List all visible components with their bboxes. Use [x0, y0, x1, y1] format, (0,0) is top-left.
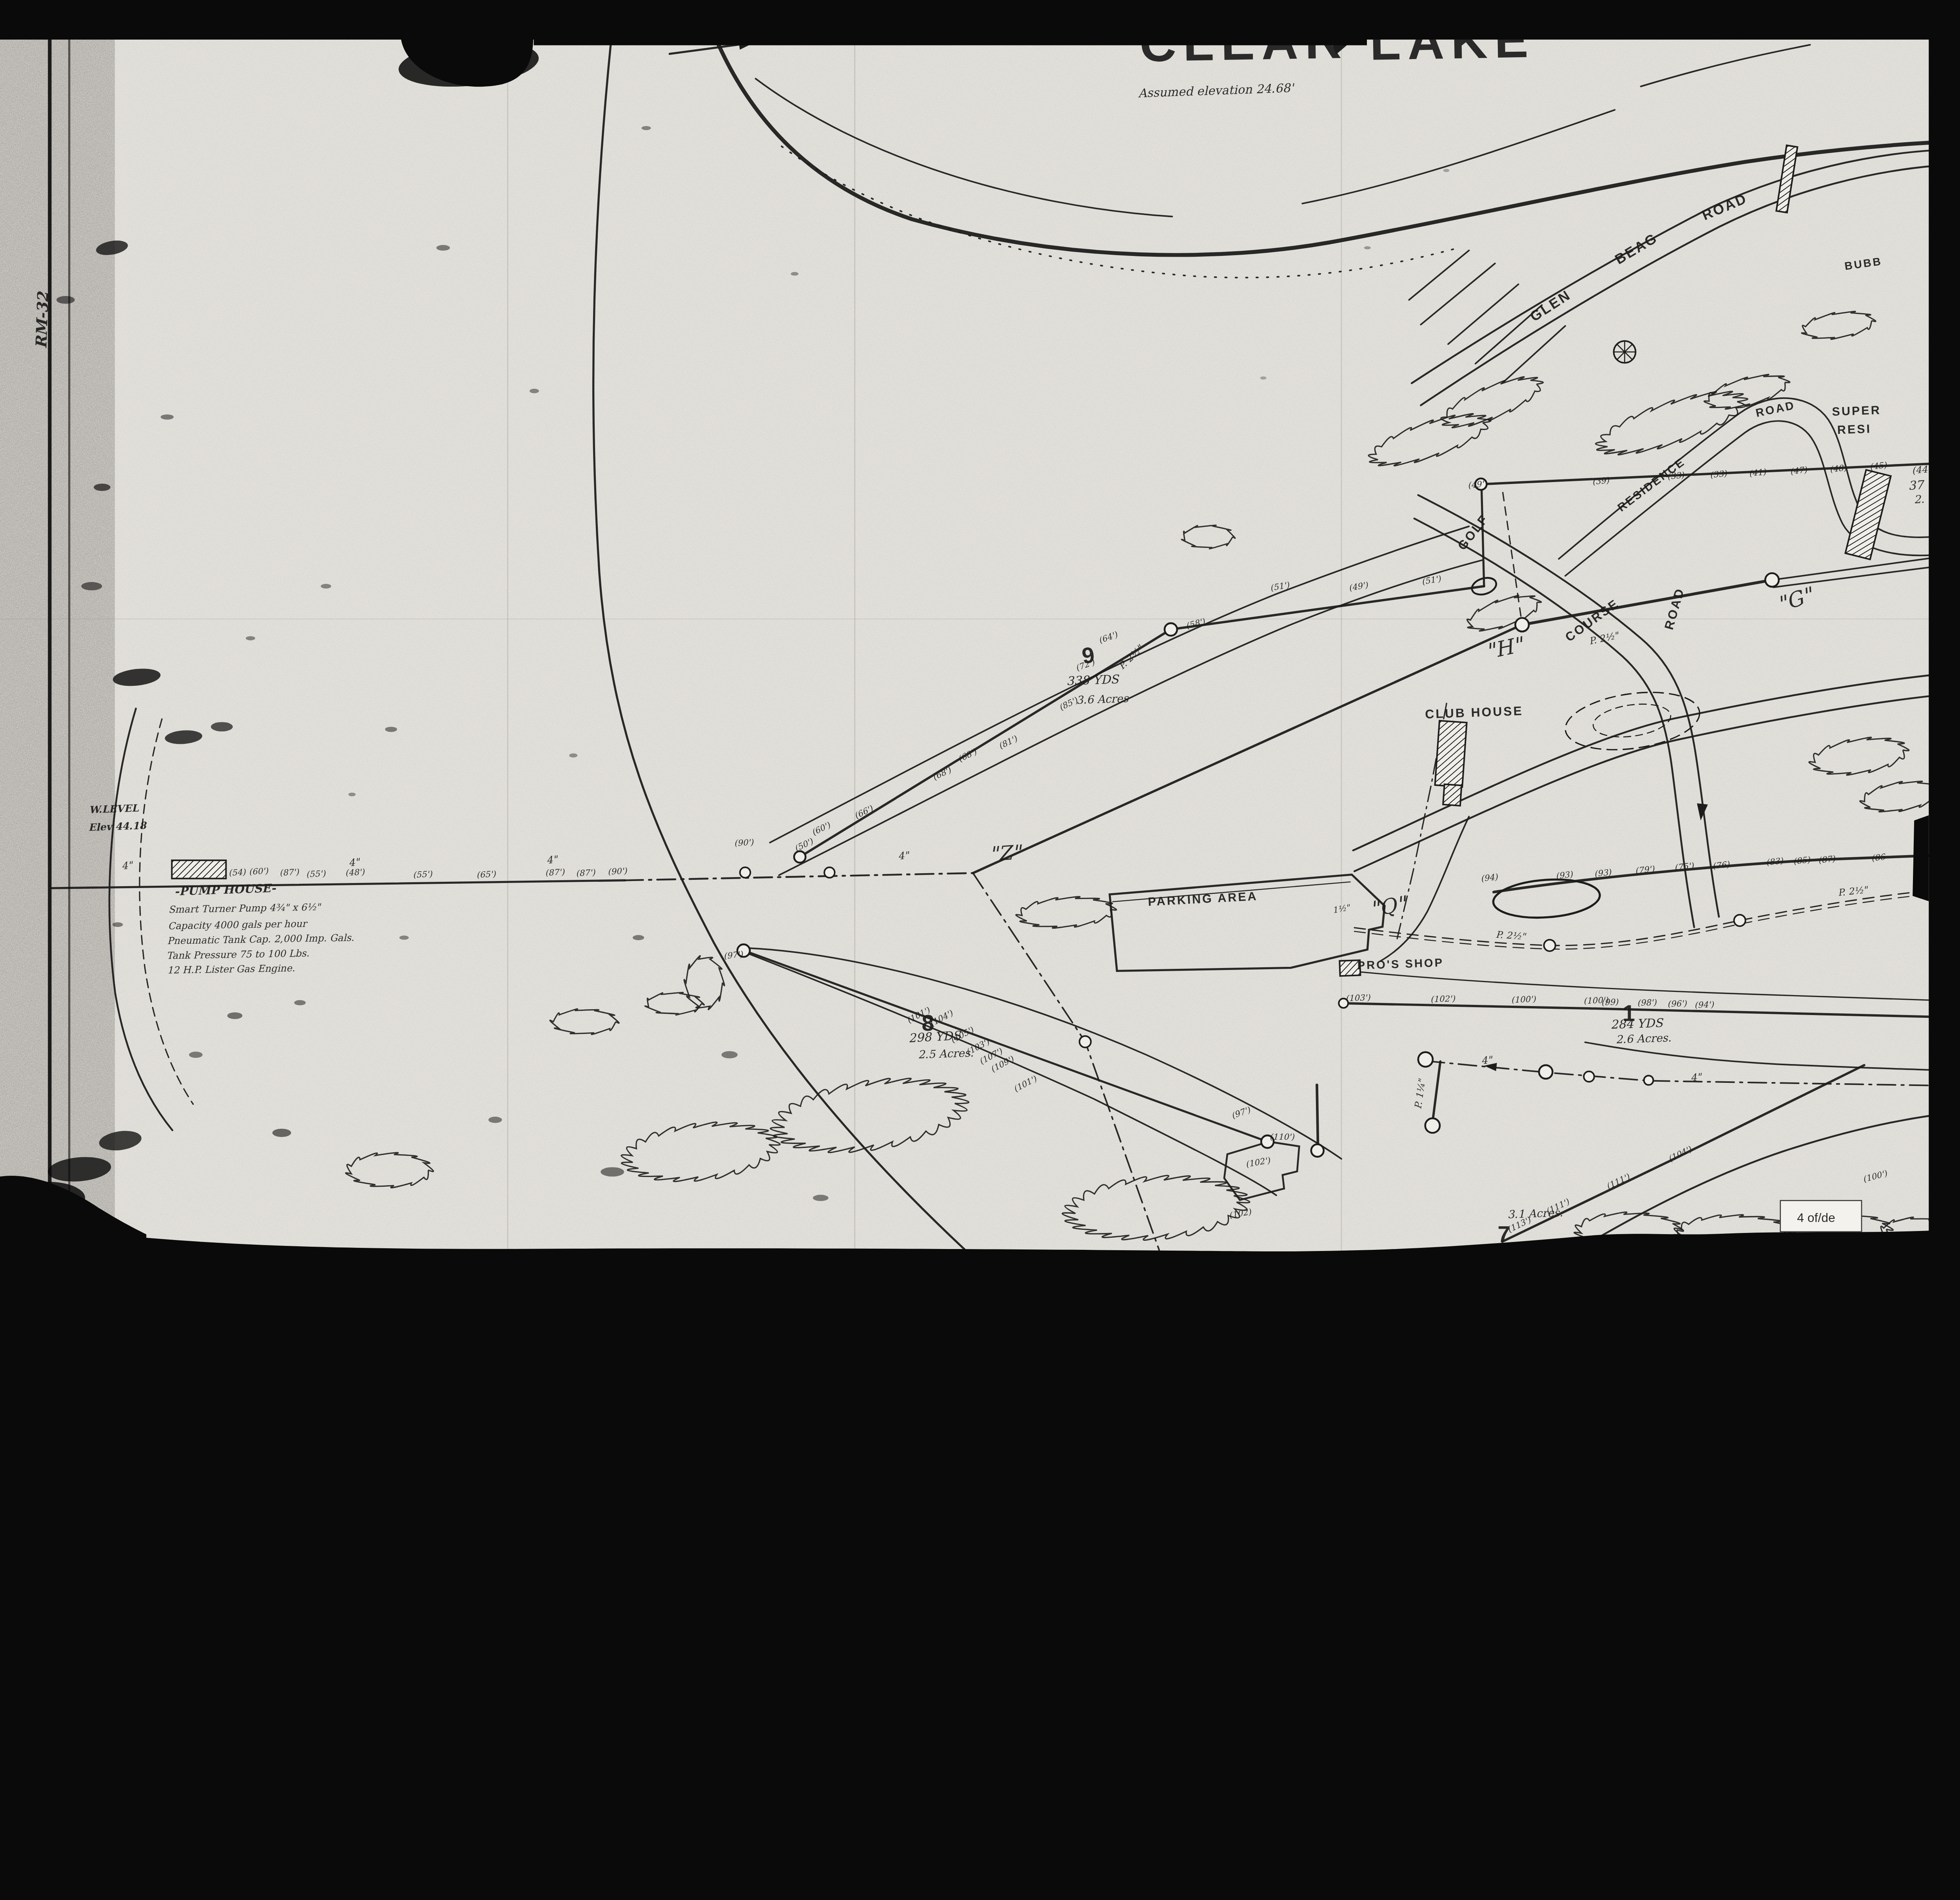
main-line-distance: (65')	[476, 869, 496, 880]
ink-blotch	[94, 484, 111, 491]
ink-blotch	[321, 584, 331, 589]
hole-1-yards: 284 YDS	[1610, 1016, 1664, 1032]
q-line-distance: (87)	[1818, 854, 1837, 865]
left-edge-line-2	[68, 0, 70, 1262]
top-line-distance: (45)	[1869, 460, 1888, 472]
main-line-distance: (55')	[306, 868, 326, 879]
club-house-annex	[1443, 784, 1461, 806]
sprinkler-point	[1165, 623, 1177, 636]
ink-blotch	[791, 272, 799, 276]
clipped-acres: 2.	[1913, 493, 1925, 506]
ink-blotch	[385, 727, 397, 732]
water-level-label: W.LEVEL	[89, 802, 139, 815]
top-line-distance: (48)	[1829, 462, 1848, 474]
scan-grain	[0, 0, 1960, 1262]
margin-note: RM-32	[32, 290, 52, 349]
main-line-distance: (87')	[575, 867, 596, 878]
ink-blotch	[601, 1167, 624, 1177]
hole-9-acres: 3.6 Acres	[1076, 692, 1129, 707]
q-line-distance: (75')	[1674, 861, 1695, 872]
pump-spec-line: 12 H.P. Lister Gas Engine.	[167, 962, 295, 976]
p1quarter-outlet	[1425, 1118, 1440, 1133]
top-black-band	[0, 0, 1960, 40]
hole-1-line-distance: (98')	[1637, 997, 1657, 1008]
pipe-size-label: 4"	[897, 849, 910, 862]
hole-1-line-distance: (102')	[1430, 994, 1456, 1004]
ink-blotch	[813, 1195, 829, 1201]
ink-blotch	[246, 636, 255, 640]
q-line-distance: (76)	[1712, 859, 1731, 871]
sprinkler-point	[1080, 1036, 1091, 1047]
ink-blotch	[642, 126, 651, 130]
ink-blotch	[721, 1051, 737, 1059]
point-z-label: "Z"	[988, 840, 1024, 866]
sprinkler-point	[1539, 1065, 1553, 1079]
sprinkler-point	[740, 867, 751, 878]
ink-blotch	[399, 935, 409, 940]
pipe-size-label: 4"	[1690, 1071, 1703, 1084]
top-line-distance: (33)	[1666, 470, 1685, 482]
ink-blotch	[1260, 376, 1267, 379]
pipe-size-label: P. 2½"	[1495, 929, 1527, 942]
top-line-distance: (41)	[1748, 467, 1767, 479]
main-line-distance: (60')	[249, 866, 269, 877]
ink-blotch	[488, 1117, 502, 1123]
clipped-yards: 37	[1908, 478, 1926, 493]
ink-blotch	[161, 414, 174, 419]
hole-1-acres: 2.6 Acres.	[1615, 1031, 1671, 1046]
hole-1-line-distance: (103')	[1345, 992, 1371, 1003]
pipe-size-label: 4"	[546, 854, 559, 866]
club-house-building	[1435, 721, 1467, 787]
drop-pipe	[1317, 1085, 1318, 1147]
q-line-distance: (83)	[1766, 856, 1784, 867]
q-line-distance: (86	[1871, 852, 1886, 863]
pipe-size-label: 4"	[1481, 1054, 1494, 1066]
main-line-distance: (90')	[607, 866, 628, 877]
main-line-distance: (87')	[545, 867, 565, 878]
q-line-distance: (85)	[1793, 854, 1811, 866]
sprinkler-point	[1644, 1075, 1653, 1085]
ink-blotch	[113, 922, 123, 927]
sprinkler-point	[1734, 915, 1745, 926]
water-elevation-label: Elev 44.18	[88, 819, 147, 833]
sprinkler-point	[824, 867, 835, 878]
left-edge-line	[48, 0, 51, 1262]
ink-blotch	[272, 1129, 291, 1137]
top-band-lip	[534, 39, 1367, 45]
hole-8-tee-distance: (97')	[723, 949, 744, 961]
drop-pipe-outlet	[1311, 1144, 1324, 1157]
main-line-distance: (90')	[734, 837, 754, 848]
top-line-distance: (33)	[1709, 468, 1728, 480]
ink-blotch	[189, 1052, 203, 1058]
left-margin-texture	[0, 0, 114, 1262]
ink-blotch	[436, 245, 450, 251]
sprinkler-point	[1544, 940, 1555, 951]
paper-layer	[0, 0, 1960, 1262]
sprinkler-point	[794, 851, 806, 863]
hole-1-line-distance: (100')	[1511, 994, 1537, 1004]
superintendent-residence-label: RESI	[1837, 422, 1871, 436]
ink-blotch	[227, 1012, 243, 1019]
hole-1-line-distance: (94')	[1694, 999, 1715, 1010]
superintendent-residence-label: SUPER	[1832, 403, 1881, 418]
sprinkler-point	[1584, 1071, 1594, 1082]
sprinkler-point	[1418, 1052, 1433, 1067]
hole-1-line-distance: (96')	[1667, 998, 1688, 1009]
ink-blotch	[569, 753, 577, 758]
q-line-distance: (93)	[1555, 869, 1574, 881]
hole-9-yards: 338 YDS	[1066, 672, 1120, 688]
right-band-wedge	[1913, 815, 1929, 901]
ink-blotch	[633, 935, 644, 940]
ink-blotch	[294, 1000, 306, 1005]
ink-blotch	[211, 722, 233, 731]
point-h-circle	[1515, 618, 1529, 632]
ink-blotch	[1443, 169, 1450, 172]
hole-8-line-distance: (110')	[1270, 1132, 1295, 1142]
point-g-circle	[1765, 573, 1779, 587]
page-marker: 4 of/de	[1797, 1211, 1835, 1225]
clipped-distance: (44	[1911, 464, 1928, 476]
pipe-size-label: 4"	[121, 859, 134, 872]
ink-blotch	[81, 582, 102, 590]
main-line-distance: (54)	[228, 867, 247, 877]
ink-blotch	[348, 792, 356, 796]
scanned-map-sheet: CLEARLAKEAssumed elevation 24.68'GLENBEA…	[0, 0, 1960, 1262]
main-line-distance: (87')	[279, 867, 299, 878]
hole-1-line-distance: (99)	[1601, 997, 1619, 1008]
main-line-distance: (55')	[412, 869, 433, 880]
pump-house-building	[172, 860, 226, 878]
ink-blotch	[1364, 246, 1371, 249]
top-line-distance: (39)	[1592, 475, 1610, 487]
q-line-distance: (94)	[1480, 872, 1499, 883]
top-line-distance: (49')	[1467, 479, 1488, 490]
ink-blotch	[56, 296, 74, 304]
q-line-distance: (79')	[1635, 864, 1656, 876]
right-black-band	[1929, 0, 1960, 1262]
top-line-distance: (47)	[1789, 465, 1808, 477]
main-line-distance: (48')	[345, 867, 365, 878]
pipe-size-label: 4"	[348, 856, 361, 868]
ink-blotch	[530, 389, 539, 393]
q-line-distance: (93)	[1593, 867, 1612, 879]
